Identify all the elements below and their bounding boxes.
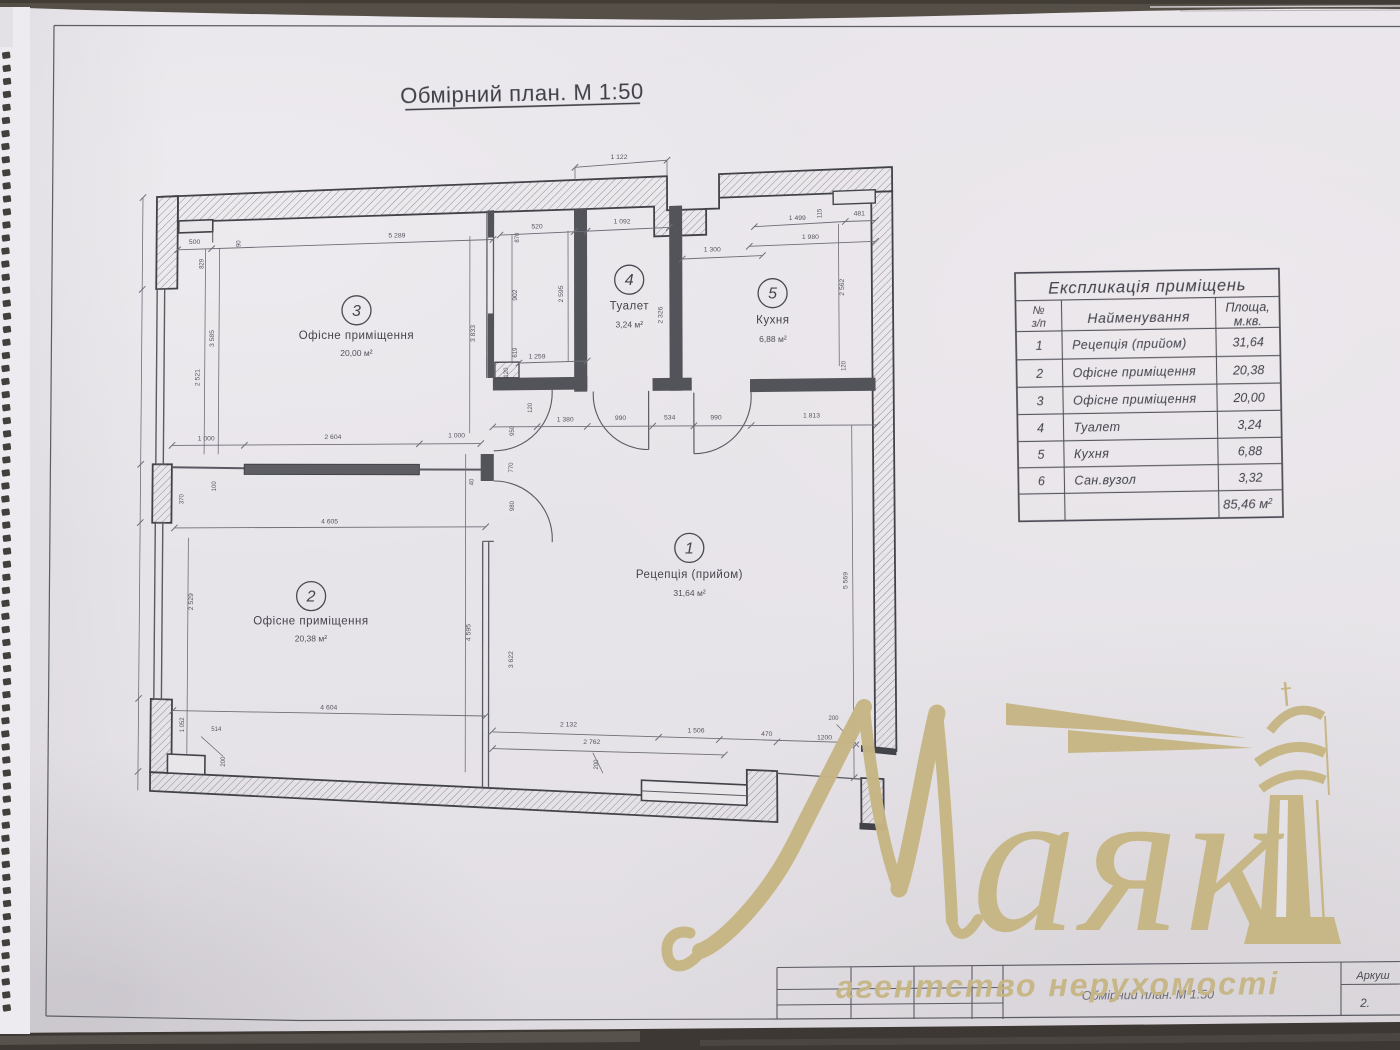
svg-text:Офісне приміщення: Офісне приміщення	[1073, 364, 1197, 380]
svg-text:Рецепція (прийом): Рецепція (прийом)	[636, 569, 743, 581]
svg-text:Аркуш: Аркуш	[1355, 970, 1389, 982]
svg-text:Офісне приміщення: Офісне приміщення	[1073, 392, 1197, 408]
svg-text:4 604: 4 604	[320, 704, 337, 711]
svg-text:4: 4	[625, 272, 634, 289]
svg-text:з/п: з/п	[1031, 318, 1046, 330]
svg-text:Кухня: Кухня	[756, 315, 789, 327]
svg-text:1 813: 1 813	[803, 413, 820, 420]
svg-text:200: 200	[828, 716, 839, 722]
svg-text:6: 6	[1038, 474, 1045, 488]
svg-text:3 585: 3 585	[209, 330, 216, 347]
svg-text:200: 200	[221, 756, 227, 767]
svg-text:902: 902	[512, 289, 519, 301]
svg-text:500: 500	[189, 239, 201, 246]
svg-text:Експликація приміщень: Експликація приміщень	[1048, 276, 1246, 297]
svg-text:100: 100	[212, 481, 218, 492]
svg-text:2 326: 2 326	[657, 306, 664, 323]
svg-text:3,24 м²: 3,24 м²	[616, 319, 644, 329]
svg-text:481: 481	[854, 211, 866, 218]
svg-text:20,38: 20,38	[1232, 363, 1265, 378]
svg-text:990: 990	[710, 414, 722, 421]
svg-text:1 506: 1 506	[687, 727, 704, 734]
svg-text:1: 1	[685, 540, 694, 557]
svg-text:2: 2	[306, 589, 316, 606]
svg-text:5: 5	[768, 286, 777, 303]
svg-text:31,64 м²: 31,64 м²	[673, 588, 705, 598]
svg-text:6,88: 6,88	[1238, 444, 1263, 458]
svg-text:1 000: 1 000	[198, 435, 215, 442]
svg-text:2 529: 2 529	[188, 593, 195, 610]
svg-text:м.кв.: м.кв.	[1234, 314, 1262, 328]
svg-text:2 762: 2 762	[583, 739, 600, 746]
svg-text:85,46 м2: 85,46 м2	[1223, 496, 1273, 512]
svg-text:4 605: 4 605	[321, 518, 338, 525]
svg-text:40: 40	[470, 478, 476, 485]
svg-text:950: 950	[510, 425, 516, 436]
svg-text:Найменування: Найменування	[1087, 308, 1190, 326]
svg-text:Туалет: Туалет	[610, 300, 650, 312]
svg-text:1 980: 1 980	[802, 234, 819, 241]
svg-text:1 499: 1 499	[789, 215, 806, 222]
svg-text:370: 370	[180, 493, 186, 504]
svg-text:1 300: 1 300	[704, 247, 721, 254]
svg-text:2 132: 2 132	[560, 721, 577, 728]
svg-text:120: 120	[528, 402, 534, 413]
svg-text:2: 2	[1035, 367, 1043, 381]
svg-text:619: 619	[513, 347, 519, 358]
svg-text:1 122: 1 122	[610, 154, 627, 161]
svg-text:1200: 1200	[817, 734, 832, 741]
svg-text:Площа,: Площа,	[1225, 300, 1269, 315]
svg-text:№: №	[1033, 305, 1045, 317]
svg-text:520: 520	[531, 224, 543, 231]
svg-text:1 000: 1 000	[448, 432, 465, 439]
svg-text:120: 120	[504, 367, 510, 378]
svg-text:2 521: 2 521	[195, 369, 202, 386]
svg-text:870: 870	[515, 232, 521, 243]
svg-text:4 595: 4 595	[466, 624, 473, 641]
svg-text:Туалет: Туалет	[1073, 420, 1120, 435]
svg-text:990: 990	[615, 415, 627, 422]
svg-text:2 604: 2 604	[324, 434, 341, 441]
svg-text:3 833: 3 833	[470, 325, 477, 342]
svg-text:агентство нерухомості: агентство нерухомості	[836, 965, 1280, 1005]
svg-text:534: 534	[664, 415, 676, 422]
svg-text:20,00 м²: 20,00 м²	[340, 348, 372, 358]
svg-text:5: 5	[1037, 448, 1044, 462]
svg-text:770: 770	[509, 462, 515, 473]
svg-text:1 092: 1 092	[614, 219, 631, 226]
svg-text:20,38 м²: 20,38 м²	[295, 634, 327, 644]
svg-text:115: 115	[817, 208, 823, 218]
svg-text:1: 1	[1036, 339, 1043, 353]
svg-text:120: 120	[841, 360, 847, 371]
svg-text:аяк: аяк	[972, 744, 1288, 976]
svg-text:4: 4	[1037, 421, 1044, 435]
svg-text:2 595: 2 595	[558, 285, 565, 302]
svg-text:Рецепція (прийом): Рецепція (прийом)	[1072, 336, 1187, 352]
svg-text:Сан.вузол: Сан.вузол	[1074, 473, 1136, 488]
svg-text:3: 3	[1036, 394, 1043, 408]
svg-text:1 052: 1 052	[180, 717, 186, 733]
svg-text:2.: 2.	[1359, 998, 1370, 1010]
svg-text:20,00: 20,00	[1232, 390, 1265, 405]
svg-text:1 380: 1 380	[557, 416, 574, 423]
svg-text:3 622: 3 622	[508, 651, 515, 668]
svg-text:Офісне приміщення: Офісне приміщення	[253, 616, 368, 628]
svg-text:6,88 м²: 6,88 м²	[759, 334, 787, 344]
svg-text:514: 514	[211, 727, 222, 733]
svg-text:2 562: 2 562	[839, 278, 846, 295]
svg-text:Кухня: Кухня	[1074, 447, 1110, 462]
svg-text:5 289: 5 289	[388, 233, 405, 240]
svg-text:90: 90	[237, 240, 243, 247]
svg-text:Офісне приміщення: Офісне приміщення	[299, 330, 414, 342]
svg-text:829: 829	[200, 258, 206, 269]
svg-text:470: 470	[761, 731, 773, 738]
svg-text:31,64: 31,64	[1232, 335, 1264, 350]
svg-text:980: 980	[510, 500, 516, 511]
svg-text:5 569: 5 569	[843, 572, 850, 589]
svg-text:3: 3	[352, 303, 361, 320]
svg-text:3,32: 3,32	[1238, 470, 1263, 484]
svg-text:3,24: 3,24	[1237, 418, 1262, 432]
svg-text:1 259: 1 259	[528, 354, 545, 361]
